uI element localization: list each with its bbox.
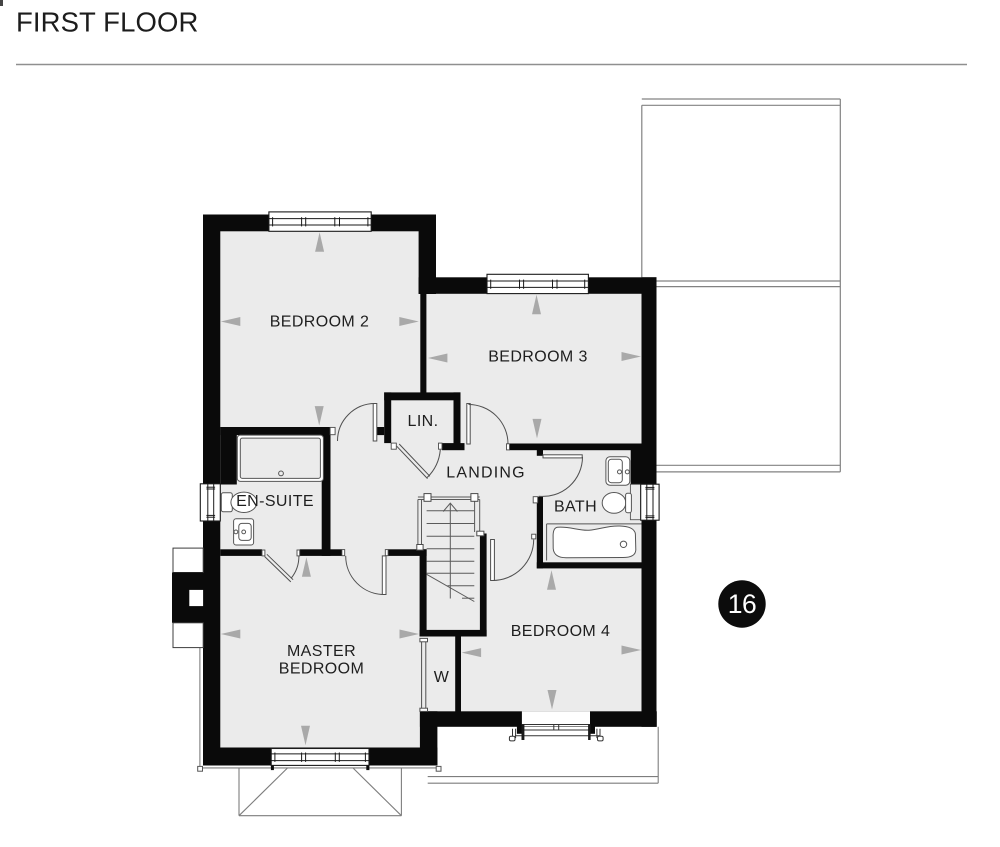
svg-text:EN-SUITE: EN-SUITE bbox=[236, 493, 314, 510]
svg-text:BATH: BATH bbox=[554, 499, 597, 516]
svg-text:FIRST FLOOR: FIRST FLOOR bbox=[16, 7, 198, 38]
svg-text:BEDROOM: BEDROOM bbox=[279, 661, 364, 678]
svg-text:LIN.: LIN. bbox=[408, 413, 439, 430]
svg-text:LANDING: LANDING bbox=[446, 465, 526, 482]
svg-text:16: 16 bbox=[728, 589, 756, 619]
svg-text:BEDROOM 4: BEDROOM 4 bbox=[511, 623, 611, 640]
svg-text:MASTER: MASTER bbox=[287, 643, 356, 660]
svg-text:BEDROOM 3: BEDROOM 3 bbox=[488, 349, 588, 366]
svg-text:W: W bbox=[434, 669, 450, 686]
svg-text:BEDROOM 2: BEDROOM 2 bbox=[270, 314, 370, 331]
